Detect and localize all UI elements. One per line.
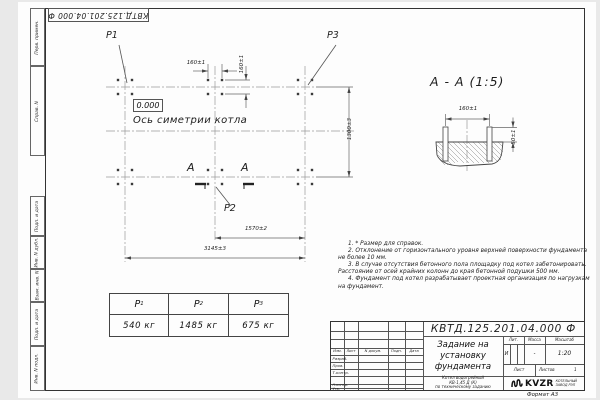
lit-header: Лит. <box>503 336 524 344</box>
note-3: 3. В случае отсутствия бетонного пола пл… <box>338 262 594 276</box>
dim-mid-to-right: 1570±2 <box>231 227 281 233</box>
dim-row-spacing: 1300±3 <box>346 114 354 144</box>
technical-notes: 1. * Размер для справок. 2. Отклонение о… <box>338 241 594 291</box>
boiler-axis-label: Ось симетрии котла <box>133 116 247 127</box>
drawing-title-line1: Задание на <box>437 340 489 351</box>
level-mark: 0.000 <box>137 101 160 110</box>
title-block-doc-number: КВТД.125.201.04.000 Ф <box>423 322 584 336</box>
mass-value: - <box>524 344 545 364</box>
drawing-title: Задание на установку фундамента <box>423 337 503 376</box>
col-header-podp: Подп. <box>388 348 405 355</box>
sheets-value: 1 <box>574 368 577 372</box>
drawing-title-line3: фундамента <box>435 362 491 373</box>
note-1: 1. * Размер для справок. <box>338 241 594 248</box>
plan-center-lines <box>106 66 467 262</box>
col-header-data: Дата <box>405 348 423 355</box>
load-table: Р1 Р2 Р3 540 кг 1485 кг 675 кг <box>109 293 289 337</box>
load-table-header-p2: Р2 <box>169 294 228 315</box>
lit-value: И <box>503 344 510 364</box>
format-note: Формат А3 <box>500 393 585 399</box>
engineering-drawing-page: { "stamp_top": { "doc_number": "КВТД.125… <box>0 0 600 400</box>
section-cut-marks <box>195 184 254 189</box>
col-header-izm: Изм. <box>331 348 344 355</box>
product-name-line3: по техническому заданию <box>435 385 491 390</box>
col-header-ndokum: N докум. <box>358 348 388 355</box>
mass-header: Масса <box>524 336 545 344</box>
dim-bolt-pitch-x: 160±1 <box>183 61 209 67</box>
scale-header: Масштаб <box>545 336 584 344</box>
load-point-p3-label: Р3 <box>327 31 339 41</box>
row-label-prov: Пров. <box>333 364 344 368</box>
drawing-title-line2: установку <box>440 351 486 362</box>
load-point-p2-label: Р2 <box>224 204 236 214</box>
scale-value: 1:20 <box>545 344 584 364</box>
load-point-p1-label: Р1 <box>106 31 118 41</box>
load-table-value-p3: 675 кг <box>229 315 288 336</box>
load-table-value-p2: 1485 кг <box>169 315 228 336</box>
manufacturer-logo: KVZR КОТЕЛЬНЫЙ ЗАВОД РЭП <box>503 376 585 391</box>
row-label-tkontr: Т.контр. <box>333 371 349 375</box>
load-table-header-p1: Р1 <box>110 294 169 315</box>
sheet-label: Лист <box>503 364 535 376</box>
row-label-utv: Утв. <box>333 388 340 392</box>
section-letter-left: А <box>187 162 195 174</box>
section-dim-protrusion: 50±1 <box>510 127 518 147</box>
row-label-razrab: Разраб. <box>333 357 348 361</box>
logo-caption: КОТЕЛЬНЫЙ ЗАВОД РЭП <box>556 380 577 388</box>
section-view-title: А - А (1:5) <box>430 75 504 88</box>
section-dim-bolt-pitch: 160±1 <box>450 107 486 113</box>
product-name: Котел водогрейный КВ-1,45 Д (К) по техни… <box>423 376 503 390</box>
dim-bolt-pitch-y: 160±1 <box>238 52 246 76</box>
load-table-header-p3: Р3 <box>229 294 288 315</box>
sheets-label: Листов <box>539 368 555 372</box>
logo-name: KVZR <box>525 379 554 389</box>
section-dimension-lines <box>446 114 518 152</box>
logo-caption-line2: ЗАВОД РЭП <box>556 384 577 388</box>
col-header-list: Лист <box>344 348 358 355</box>
load-table-value-p1: 540 кг <box>110 315 169 336</box>
note-2: 2. Отклонение от горизонтального уровня … <box>338 248 594 262</box>
note-4: 4. Фундамент под котел разрабатывает про… <box>338 276 594 290</box>
title-block: КВТД.125.201.04.000 Ф Изм. Лист N докум.… <box>330 321 585 391</box>
section-letter-right: А <box>241 162 249 174</box>
dim-overall: 3145±3 <box>190 247 240 253</box>
section-dimension-arrows <box>446 117 515 148</box>
level-mark-box: 0.000 <box>133 99 163 112</box>
kvzr-spring-icon <box>511 378 523 389</box>
